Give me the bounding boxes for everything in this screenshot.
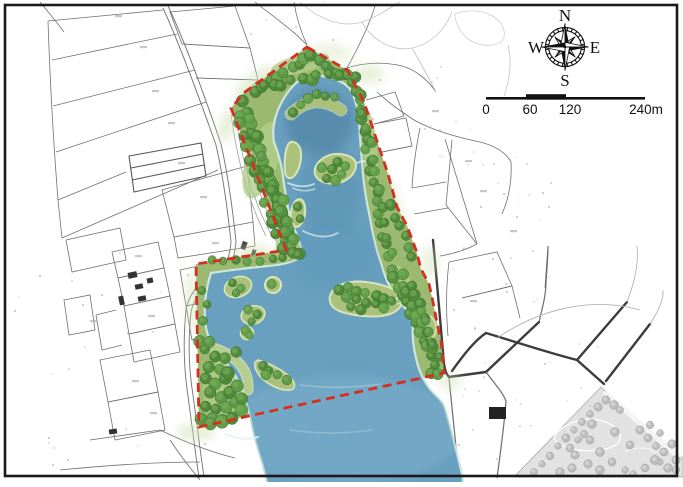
svg-text:N: N	[559, 6, 571, 25]
svg-text:E: E	[590, 38, 600, 57]
svg-text:240m: 240m	[629, 102, 663, 117]
svg-text:W: W	[528, 38, 545, 57]
svg-text:60: 60	[522, 102, 537, 117]
svg-text:0: 0	[482, 102, 490, 117]
svg-text:S: S	[560, 71, 569, 90]
svg-text:120: 120	[559, 102, 582, 117]
